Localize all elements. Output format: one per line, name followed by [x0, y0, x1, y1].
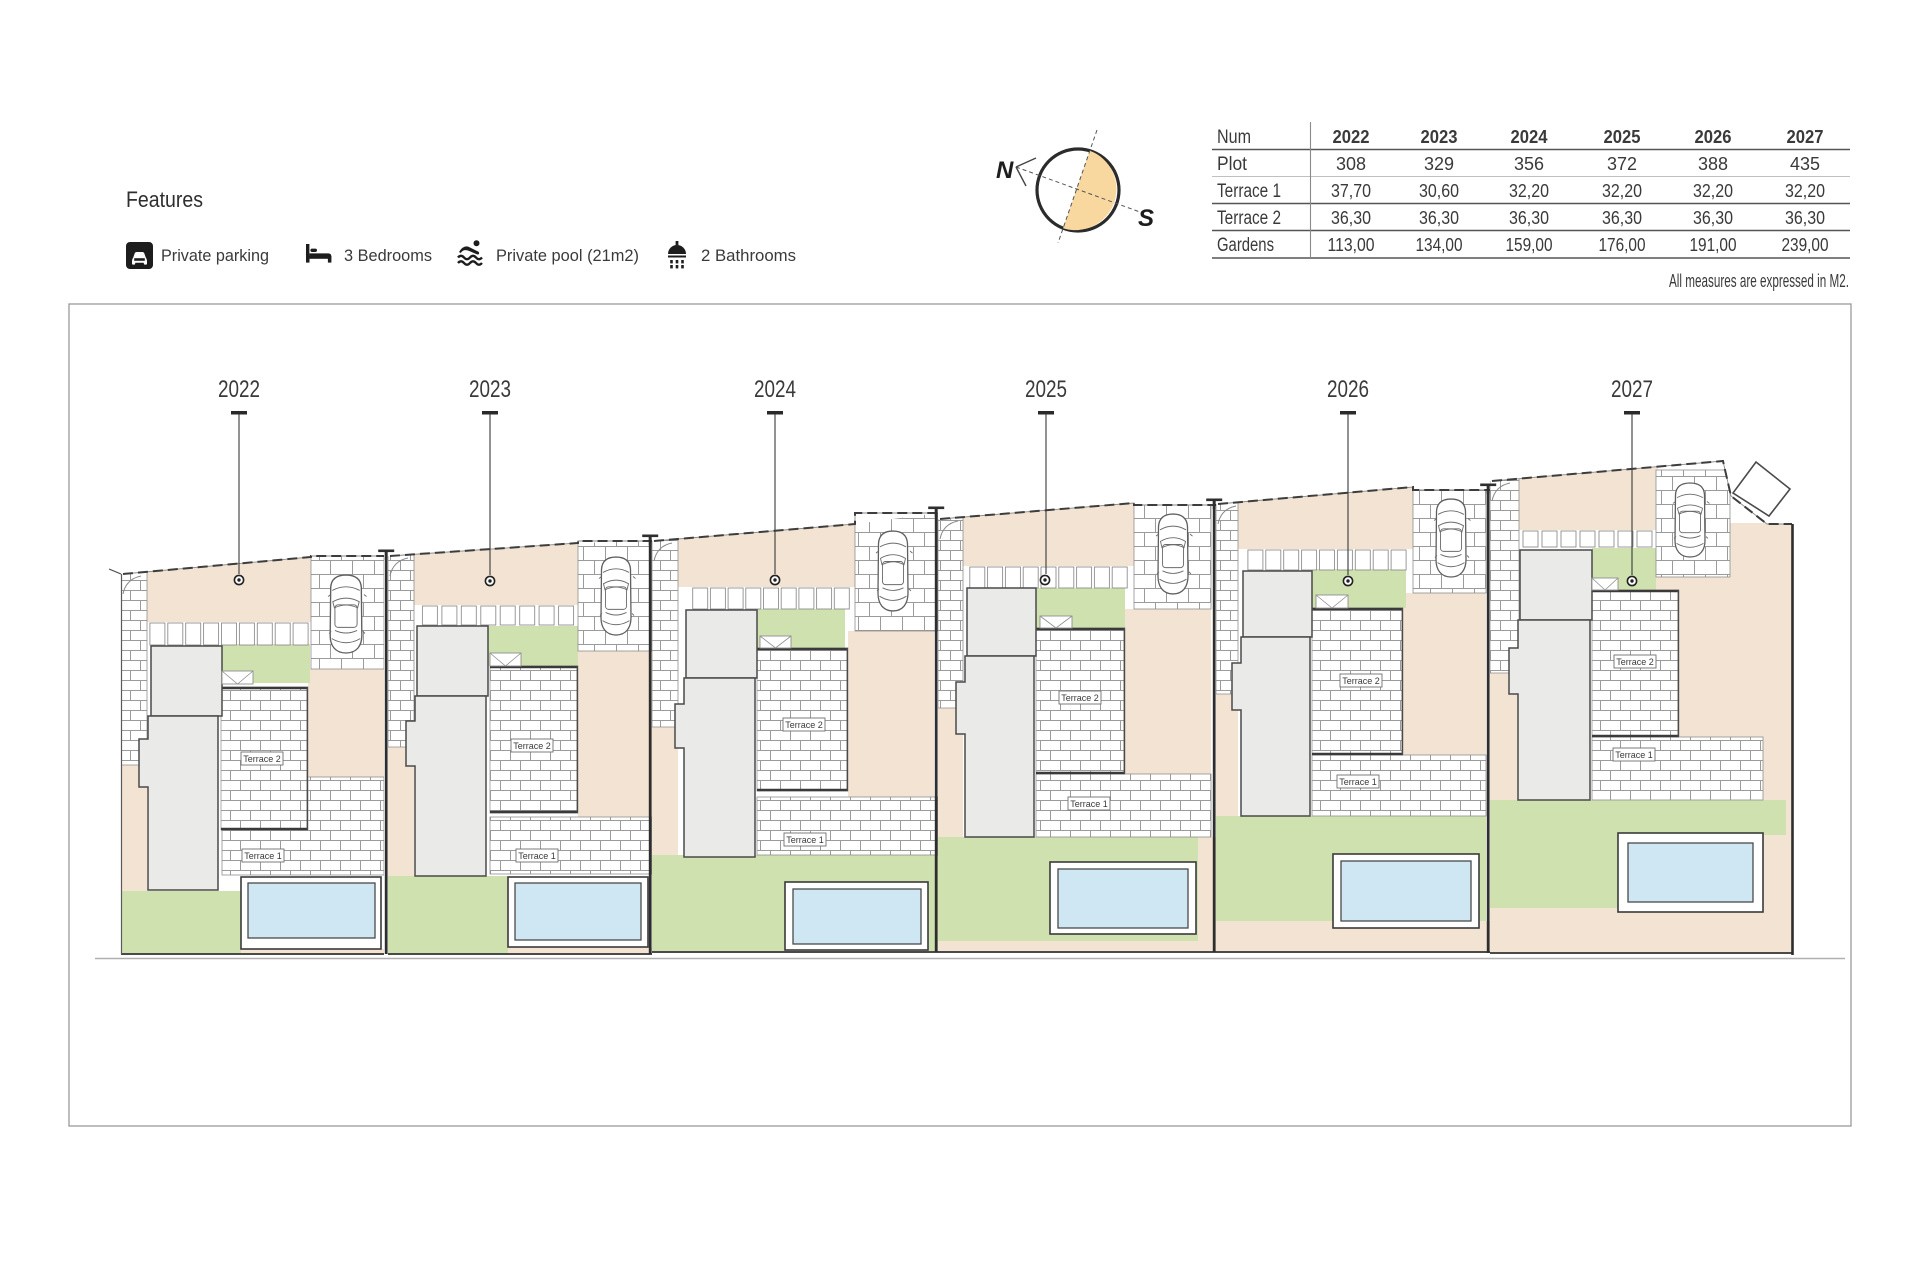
svg-text:Terrace 1: Terrace 1 — [1339, 777, 1377, 787]
svg-text:2026: 2026 — [1327, 376, 1369, 403]
svg-text:30,60: 30,60 — [1419, 180, 1459, 201]
svg-text:Num: Num — [1217, 127, 1251, 148]
svg-text:Terrace 1: Terrace 1 — [1070, 799, 1108, 809]
svg-text:2025: 2025 — [1025, 376, 1067, 403]
svg-text:32,20: 32,20 — [1693, 180, 1733, 201]
svg-text:Terrace 1: Terrace 1 — [1217, 181, 1281, 202]
svg-text:2027: 2027 — [1787, 126, 1824, 147]
svg-text:2024: 2024 — [1511, 126, 1549, 147]
svg-text:Terrace 2: Terrace 2 — [1342, 676, 1380, 686]
svg-text:Gardens: Gardens — [1217, 235, 1274, 256]
svg-text:Terrace 2: Terrace 2 — [513, 741, 551, 751]
svg-text:159,00: 159,00 — [1506, 234, 1553, 255]
svg-text:Terrace 1: Terrace 1 — [786, 835, 824, 845]
svg-text:S: S — [1138, 205, 1154, 232]
svg-text:Terrace 2: Terrace 2 — [1616, 657, 1654, 667]
svg-text:Plot: Plot — [1217, 154, 1248, 175]
svg-text:2025: 2025 — [1604, 126, 1641, 147]
svg-text:32,20: 32,20 — [1602, 180, 1642, 201]
svg-text:2022: 2022 — [218, 376, 260, 403]
svg-text:3 Bedrooms: 3 Bedrooms — [344, 246, 432, 265]
svg-text:2027: 2027 — [1611, 376, 1653, 403]
svg-text:388: 388 — [1698, 153, 1728, 174]
svg-text:32,20: 32,20 — [1785, 180, 1825, 201]
svg-text:176,00: 176,00 — [1599, 234, 1646, 255]
svg-text:Private pool (21m2): Private pool (21m2) — [496, 246, 639, 265]
svg-text:N: N — [996, 157, 1014, 184]
svg-text:356: 356 — [1514, 153, 1544, 174]
svg-text:36,30: 36,30 — [1509, 207, 1549, 228]
svg-text:2023: 2023 — [1421, 126, 1458, 147]
svg-text:2022: 2022 — [1333, 126, 1370, 147]
svg-text:2024: 2024 — [754, 376, 796, 403]
svg-text:329: 329 — [1424, 153, 1454, 174]
svg-text:Terrace 2: Terrace 2 — [1217, 208, 1281, 229]
svg-text:2 Bathrooms: 2 Bathrooms — [701, 246, 796, 265]
svg-text:308: 308 — [1336, 153, 1366, 174]
svg-text:36,30: 36,30 — [1419, 207, 1459, 228]
svg-text:36,30: 36,30 — [1331, 207, 1371, 228]
svg-text:Terrace 2: Terrace 2 — [243, 754, 281, 764]
svg-text:Terrace 1: Terrace 1 — [244, 851, 282, 861]
svg-text:36,30: 36,30 — [1602, 207, 1642, 228]
svg-text:2026: 2026 — [1695, 126, 1732, 147]
svg-text:32,20: 32,20 — [1509, 180, 1549, 201]
svg-text:36,30: 36,30 — [1785, 207, 1825, 228]
svg-text:239,00: 239,00 — [1782, 234, 1829, 255]
svg-text:37,70: 37,70 — [1331, 180, 1371, 201]
svg-text:Terrace 2: Terrace 2 — [1061, 693, 1099, 703]
svg-text:Terrace 1: Terrace 1 — [518, 851, 556, 861]
svg-text:Private parking: Private parking — [161, 246, 269, 265]
svg-text:All measures are expressed in: All measures are expressed in M2. — [1669, 271, 1849, 291]
svg-text:372: 372 — [1607, 153, 1637, 174]
svg-text:36,30: 36,30 — [1693, 207, 1733, 228]
svg-text:134,00: 134,00 — [1416, 234, 1463, 255]
svg-text:113,00: 113,00 — [1328, 234, 1375, 255]
svg-text:Terrace 2: Terrace 2 — [785, 720, 823, 730]
svg-text:191,00: 191,00 — [1690, 234, 1737, 255]
svg-text:2023: 2023 — [469, 376, 511, 403]
svg-text:Features: Features — [126, 187, 203, 212]
svg-text:435: 435 — [1790, 153, 1820, 174]
svg-text:Terrace 1: Terrace 1 — [1615, 750, 1653, 760]
